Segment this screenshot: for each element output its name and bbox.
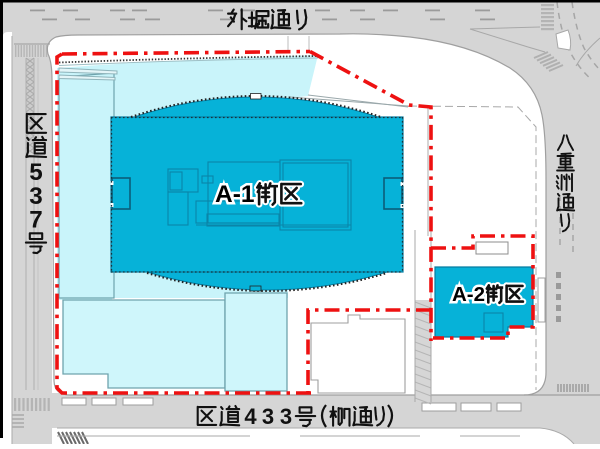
- svg-text:A-1: A-1: [215, 181, 254, 208]
- svg-text:3: 3: [262, 404, 274, 429]
- svg-text:A-2: A-2: [452, 283, 485, 306]
- svg-text:3: 3: [280, 404, 292, 429]
- svg-text:4: 4: [244, 404, 257, 429]
- svg-text:7: 7: [29, 207, 42, 234]
